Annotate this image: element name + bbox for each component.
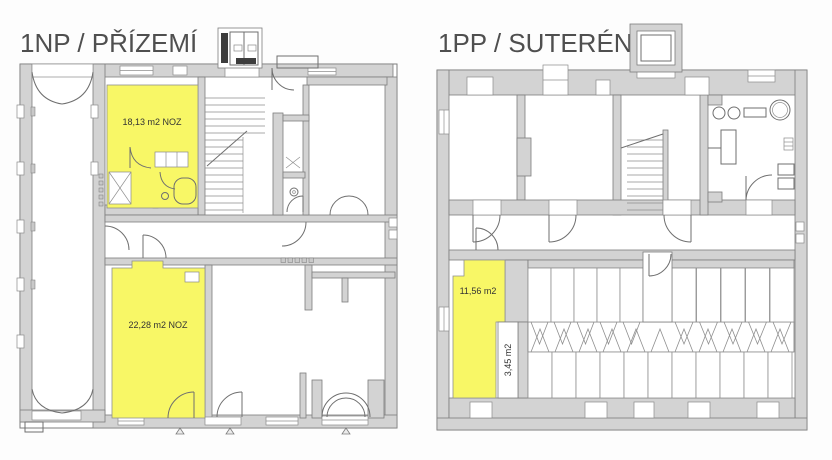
basement-room-3: 3,45 m2 bbox=[498, 322, 518, 398]
basement-plan: 1PP / SUTERÉN bbox=[437, 24, 807, 430]
highlight-room-22 bbox=[112, 261, 205, 418]
area-label-18: 18,13 m2 NOZ bbox=[122, 117, 182, 127]
area-label-3: 3,45 m2 bbox=[503, 344, 513, 377]
cellar-passage bbox=[643, 252, 672, 322]
elevator-ground bbox=[218, 28, 262, 68]
area-label-22: 22,28 m2 NOZ bbox=[128, 320, 188, 330]
floorplan-canvas: 1NP / PŘÍZEMÍ bbox=[0, 0, 832, 460]
ground-room-22-highlight: 22,28 m2 NOZ bbox=[112, 261, 205, 418]
entrance-arrow bbox=[342, 428, 350, 434]
area-label-11: 11,56 m2 bbox=[460, 286, 497, 296]
basement-title: 1PP / SUTERÉN bbox=[438, 28, 633, 58]
entrance-arrow bbox=[176, 428, 184, 434]
entrance-arrow bbox=[226, 428, 234, 434]
elevator-basement bbox=[630, 24, 682, 72]
cellar-cages bbox=[528, 252, 794, 398]
ground-room-18-highlight: 18,13 m2 NOZ bbox=[107, 85, 198, 208]
ground-floor-title: 1NP / PŘÍZEMÍ bbox=[20, 28, 198, 58]
cellar-aisle bbox=[528, 322, 794, 352]
ground-floor-plan: 1NP / PŘÍZEMÍ bbox=[17, 28, 397, 434]
